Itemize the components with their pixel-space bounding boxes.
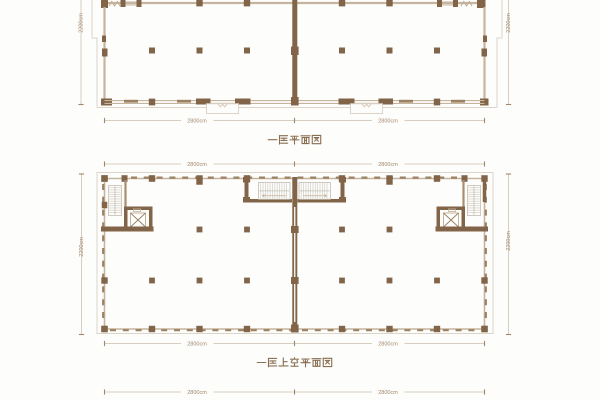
svg-text:2800cm: 2800cm xyxy=(187,390,207,396)
svg-text:2200cm: 2200cm xyxy=(506,231,512,251)
svg-text:2800cm: 2800cm xyxy=(378,162,398,168)
svg-text:2800cm: 2800cm xyxy=(187,162,207,168)
svg-text:2200cm: 2200cm xyxy=(79,237,85,257)
svg-text:2800cm: 2800cm xyxy=(378,119,398,125)
svg-text:2800cm: 2800cm xyxy=(378,390,398,396)
svg-text:2200cm: 2200cm xyxy=(506,13,512,33)
svg-text:2800cm: 2800cm xyxy=(378,342,398,348)
svg-text:2200cm: 2200cm xyxy=(79,13,85,33)
svg-text:2800cm: 2800cm xyxy=(187,342,207,348)
svg-text:2800cm: 2800cm xyxy=(187,119,207,125)
